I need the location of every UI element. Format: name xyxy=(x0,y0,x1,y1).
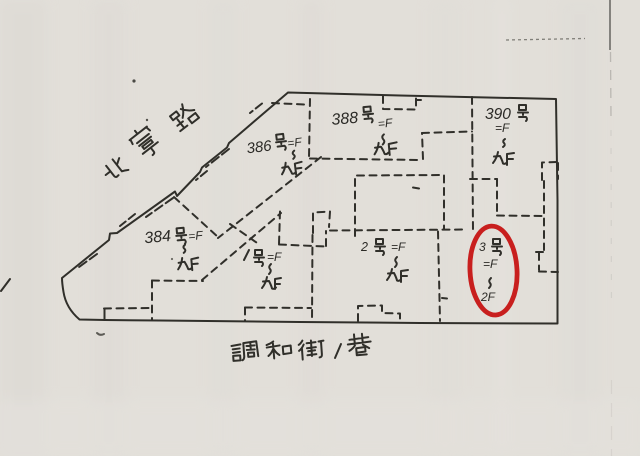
svg-text:=F: =F xyxy=(286,135,303,151)
svg-text:2: 2 xyxy=(360,240,368,254)
svg-text:386: 386 xyxy=(246,137,274,157)
svg-text:=F: =F xyxy=(267,250,282,264)
svg-text:2F: 2F xyxy=(480,290,496,304)
svg-text:388: 388 xyxy=(331,110,359,129)
svg-text:=F: =F xyxy=(188,228,204,243)
svg-text:3: 3 xyxy=(479,240,486,254)
svg-text:=F: =F xyxy=(377,116,393,131)
svg-text:=F: =F xyxy=(391,240,406,254)
svg-text:384: 384 xyxy=(144,228,172,247)
svg-text:=F: =F xyxy=(483,257,498,271)
svg-text:=F: =F xyxy=(495,121,510,135)
